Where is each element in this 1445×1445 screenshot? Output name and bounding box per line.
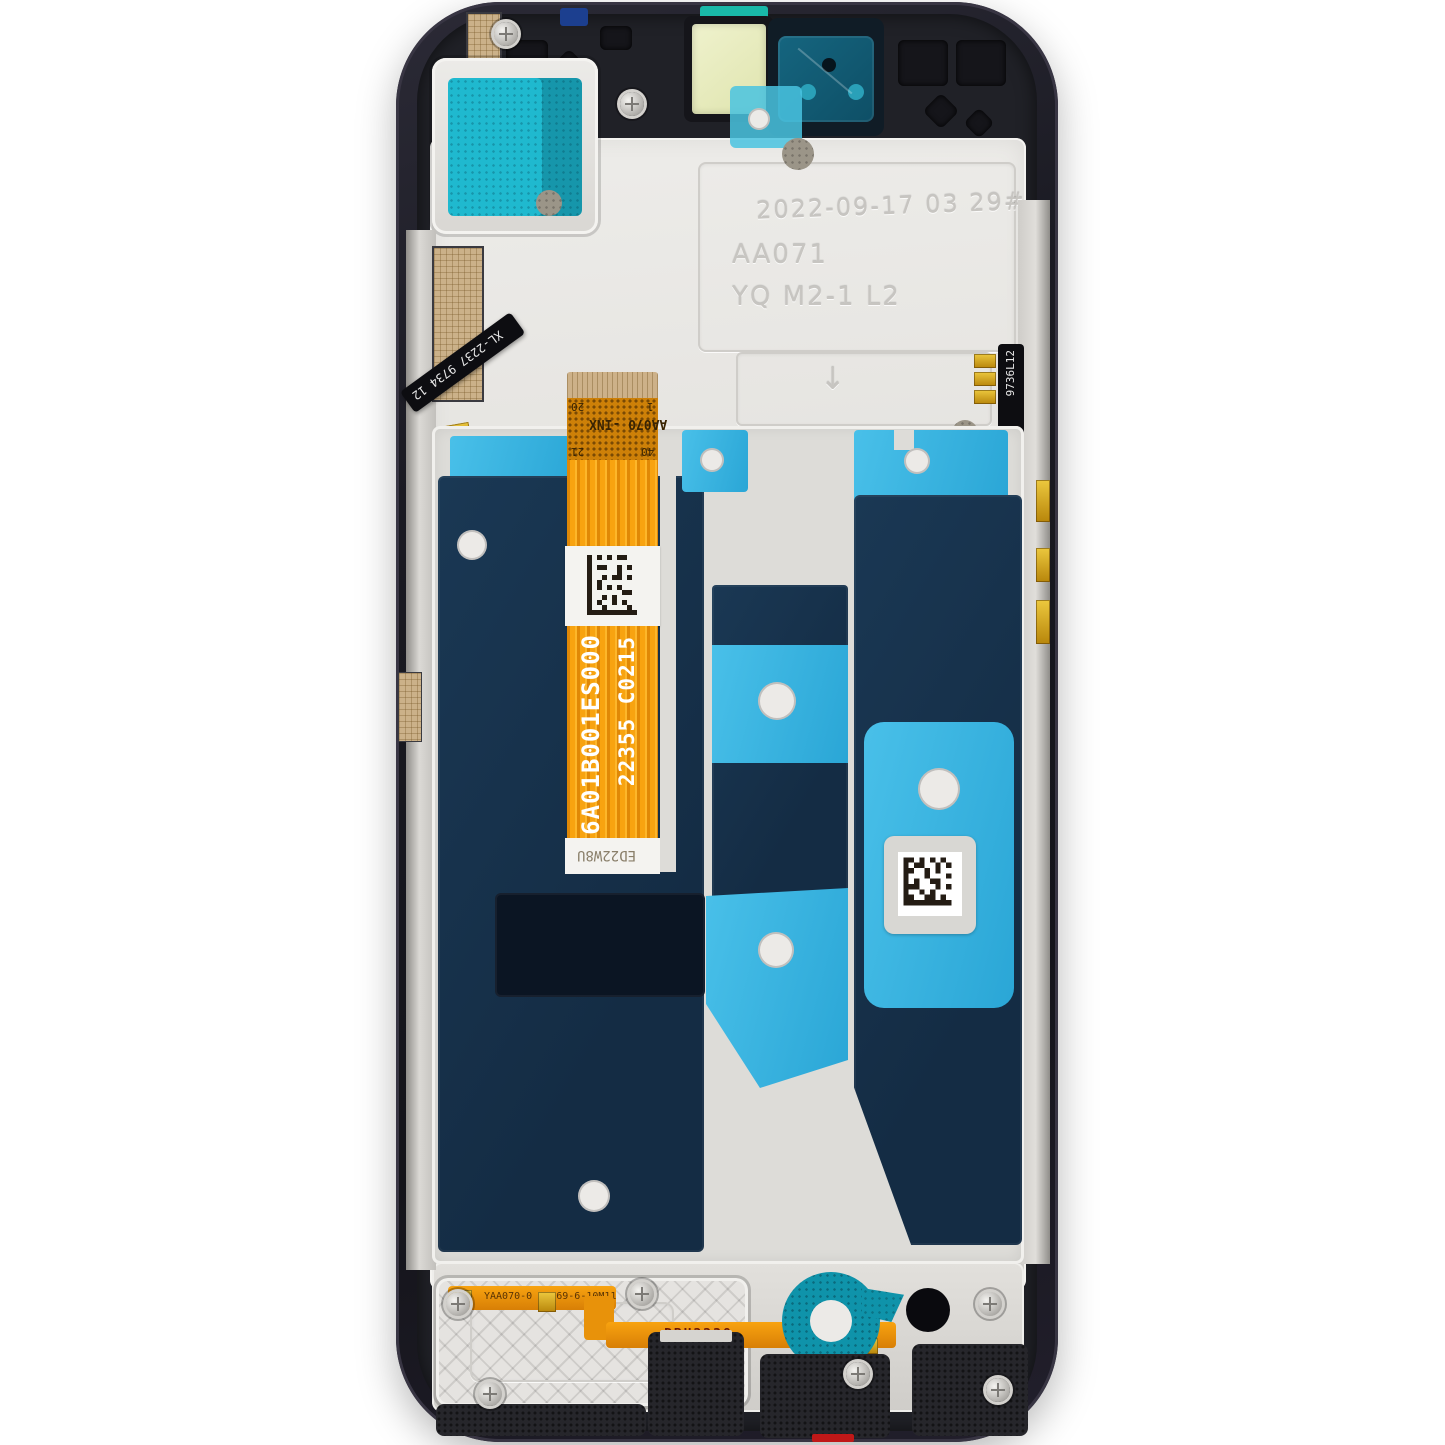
- engraved-unit-code: AA071: [732, 240, 828, 270]
- gold-contact: [974, 390, 996, 404]
- gold-contact: [1036, 600, 1050, 644]
- flex-body-labelled: 6A01B001ES000 22355 C0215: [567, 626, 658, 838]
- gold-contact: [538, 1292, 556, 1312]
- screw: [846, 1362, 870, 1386]
- screw: [986, 1378, 1010, 1402]
- flex-lot-code: 22355 C0215: [615, 636, 639, 786]
- gold-contact: [1036, 480, 1050, 522]
- chassis-cutout: [600, 26, 632, 50]
- cyan-adhesive-strip-right: [854, 430, 1008, 506]
- screw: [446, 1292, 470, 1316]
- qr-label-white: [898, 852, 962, 916]
- panel-hole: [457, 530, 487, 560]
- chassis-cutout: [898, 40, 948, 86]
- screw: [620, 92, 644, 116]
- screw: [978, 1292, 1002, 1316]
- black-shield-patch: [495, 893, 705, 997]
- screw: [630, 1282, 654, 1306]
- flex-pin-21: 21: [571, 445, 584, 458]
- bottom-chassis-block: [912, 1344, 1028, 1436]
- usb-connector-block: [648, 1332, 744, 1436]
- gold-contact: [974, 354, 996, 368]
- connector-bracket: [660, 1330, 732, 1342]
- bottom-chassis-block: [760, 1354, 890, 1438]
- flex-pin-40: 40: [641, 445, 654, 458]
- adhesive-hole: [758, 932, 794, 968]
- screw: [478, 1382, 502, 1406]
- port-hole: [906, 1288, 950, 1332]
- stamped-recess: [736, 352, 992, 426]
- blue-component-glimpse: [560, 8, 588, 26]
- speaker-hole: [810, 1300, 852, 1342]
- data-matrix-code: [898, 852, 962, 916]
- flex-bottom-label: ED22W8U: [565, 838, 660, 874]
- flex-body-upper: [567, 460, 658, 546]
- flex-connector-label: AA070 -INX: [589, 416, 667, 431]
- strip-notch: [894, 430, 914, 450]
- gold-contact: [1036, 548, 1050, 582]
- chassis-cutout: [956, 40, 1006, 86]
- adhesive-hole: [758, 682, 796, 720]
- flex-pin-20: 20: [571, 400, 584, 413]
- arrow-down-mark: ↓: [820, 362, 845, 397]
- panel-hole: [578, 1180, 610, 1212]
- product-photo: 2022-09-17 03 29# AA071 YQ M2-1 L2 ↓ XL-…: [0, 0, 1445, 1445]
- panel-gap: [660, 472, 676, 872]
- right-flex-code: 9736L12: [1004, 350, 1017, 396]
- engraved-model-code: YQ M2-1 L2: [732, 282, 901, 312]
- screw: [494, 22, 518, 46]
- bracket-dot: [800, 84, 816, 100]
- bottom-chassis-block: [436, 1404, 646, 1436]
- earpiece-teal-adhesive: [448, 78, 582, 216]
- flex-qr-label: [565, 546, 660, 626]
- flex-connector-band: 20 1 AA070 -INX 21 40: [567, 398, 658, 460]
- flex-part-number: 6A01B001ES000: [577, 634, 605, 835]
- red-gasket-glimpse: [812, 1434, 854, 1442]
- flex-connector-stiffener: [567, 372, 658, 398]
- adhesive-hole: [918, 768, 960, 810]
- adhesive-hole: [700, 448, 724, 472]
- data-matrix-code: [587, 554, 637, 616]
- adhesive-hole: [748, 108, 770, 130]
- mesh-dot: [536, 190, 562, 216]
- mic-mesh-dot: [782, 138, 814, 170]
- flex-pin-1: 1: [647, 400, 654, 413]
- antenna-mesh-pad-small: [398, 672, 422, 742]
- flex-bottom-code: ED22W8U: [577, 847, 636, 863]
- adhesive-hole: [904, 448, 930, 474]
- gold-contact: [974, 372, 996, 386]
